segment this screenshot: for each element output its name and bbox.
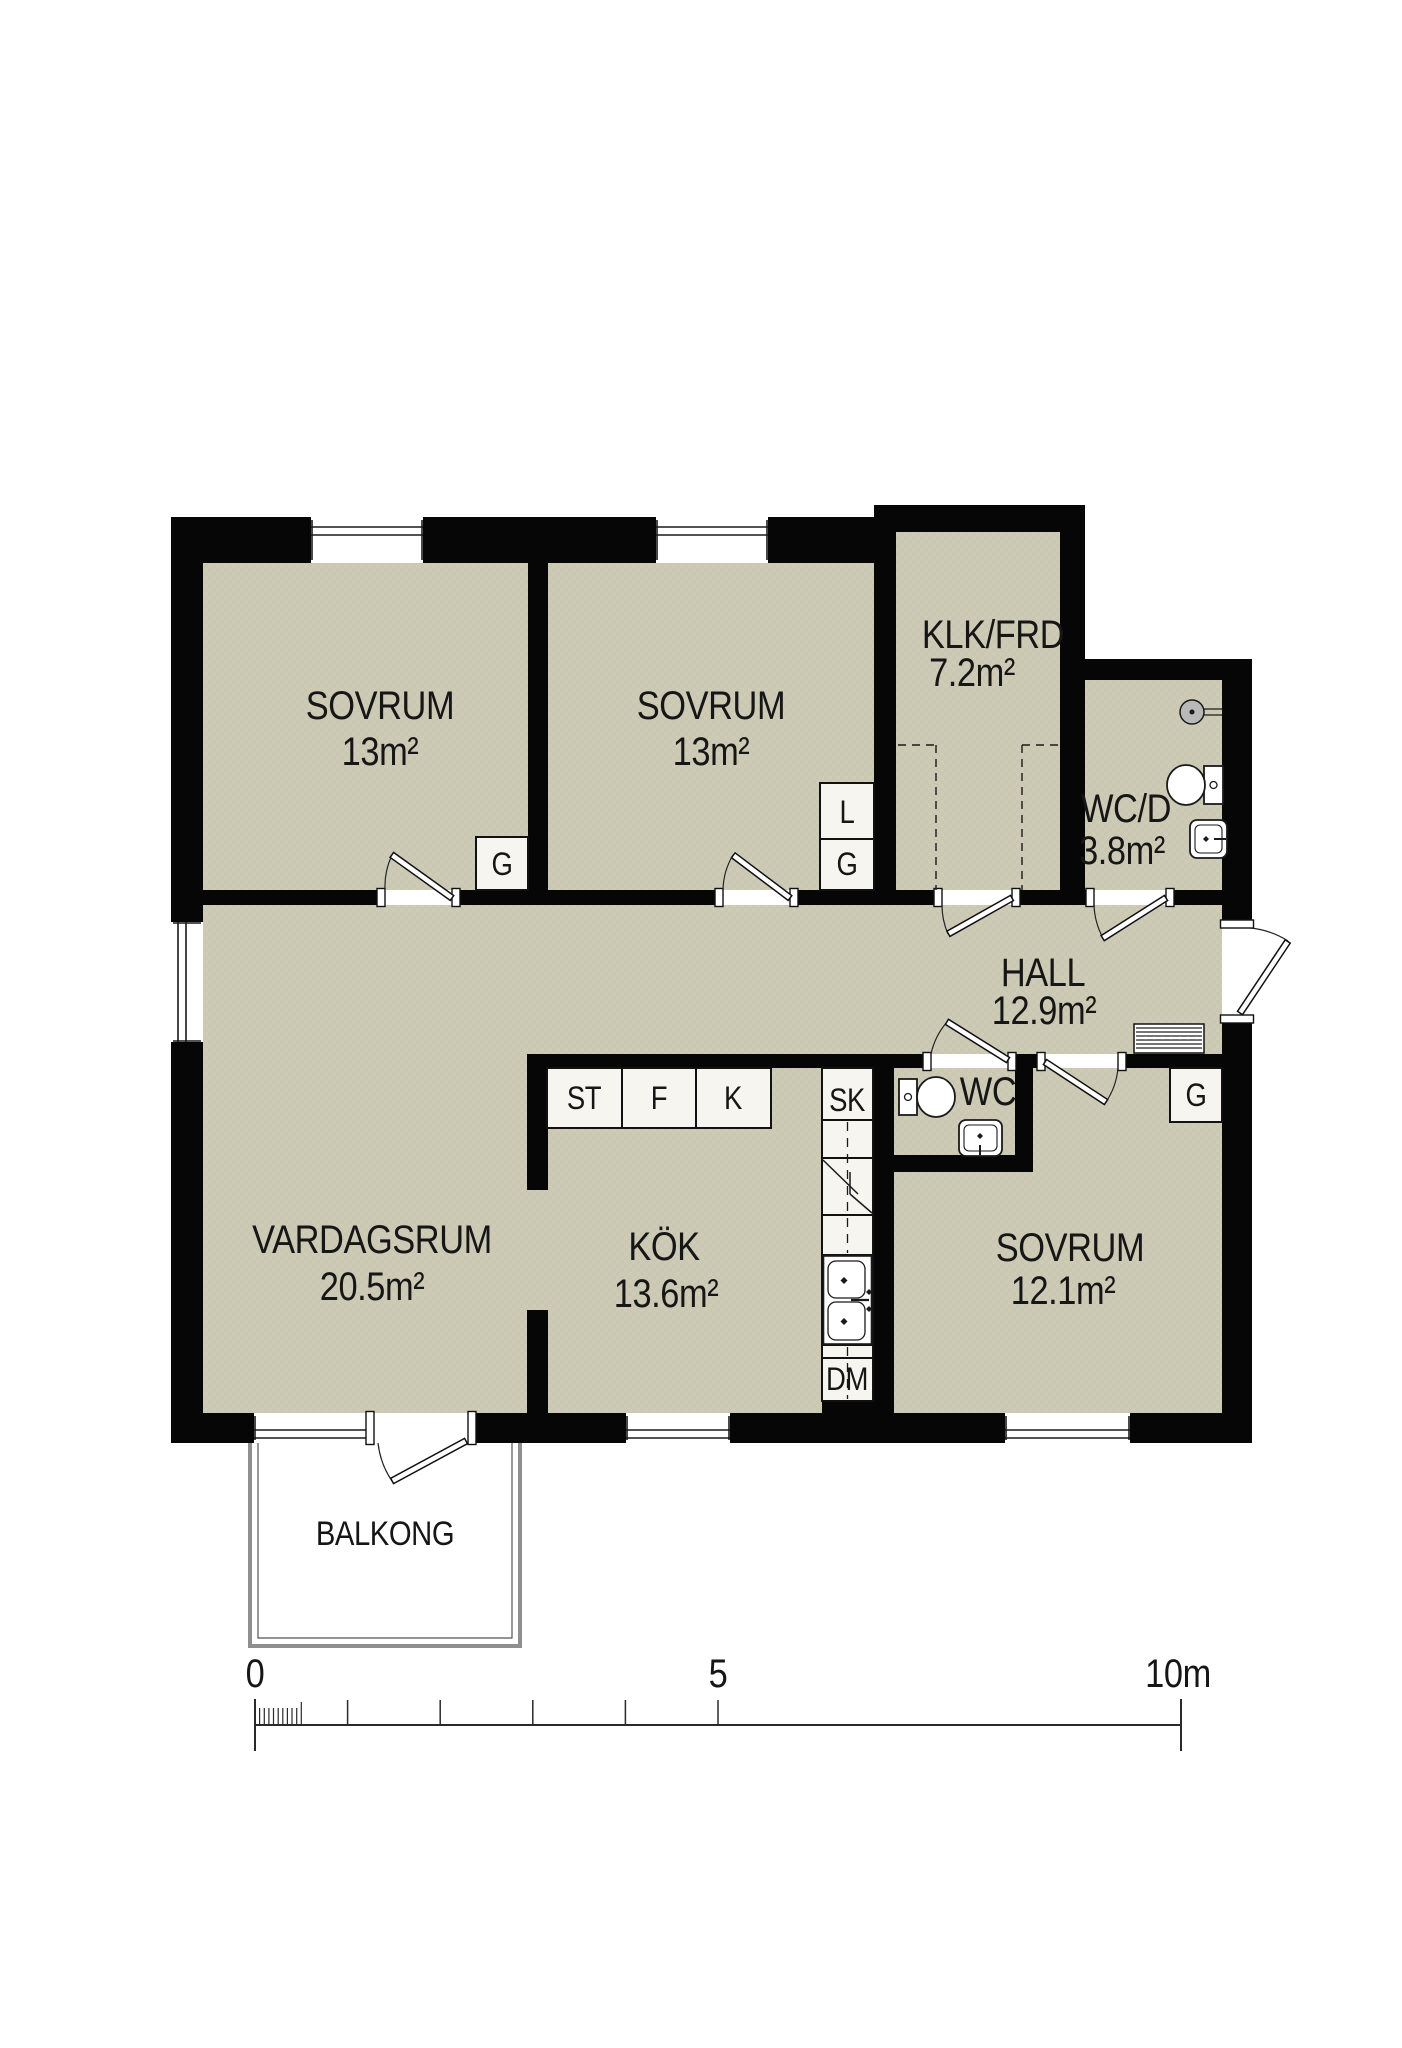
wall-livingroom-kitchen-upper: [527, 1068, 548, 1190]
room-label-sovrum3: SOVRUM: [996, 1228, 1144, 1268]
room-label-wc: WC: [960, 1072, 1016, 1112]
door-leaf: [391, 1438, 468, 1483]
sink-icon: [959, 1120, 1002, 1156]
sink-icon: [1190, 820, 1227, 858]
kitchen-sink-icon: [824, 1256, 873, 1344]
opening-balcony-door: [374, 1413, 468, 1443]
wall-kitchen-strip-cap: [822, 1401, 873, 1413]
window-livingroom-left: [171, 922, 203, 1042]
wall-exterior-right: [1222, 659, 1252, 1443]
room-label-sovrum2: SOVRUM: [637, 686, 785, 726]
room-area-vardagsrum: 20.5m²: [320, 1267, 424, 1307]
room-area-wcd: 3.8m²: [1079, 831, 1165, 871]
scale-label-0: 0: [246, 1654, 265, 1694]
scale-label-5: 5: [709, 1654, 728, 1694]
window-sovrum3: [1005, 1413, 1130, 1443]
wall-wc-bottom: [894, 1155, 1033, 1172]
door-balcony: [378, 1438, 467, 1483]
floor-plan-drawing: [0, 0, 1402, 2048]
outside-notch: [1085, 470, 1265, 659]
room-label-wcd: WC/D: [1081, 789, 1171, 829]
window-sovrum2: [656, 517, 768, 563]
wall-sovrum1-sovrum2-divider: [528, 563, 548, 905]
window-livingroom-bottom: [254, 1413, 374, 1443]
window-sovrum1: [311, 517, 423, 563]
room-area-hall: 12.9m²: [992, 991, 1096, 1031]
scale-bar: [255, 1699, 1181, 1751]
floor-klk-extension: [896, 532, 1060, 563]
cabinet-label-g-sovrum2: G: [837, 848, 858, 880]
room-area-sovrum1: 13m²: [342, 732, 419, 772]
wall-klk-top: [874, 505, 1085, 532]
cabinet-label-g-sovrum1: G: [492, 848, 513, 880]
floor-plan-page: SOVRUM 13m² SOVRUM 13m² KLK/FRD 7.2m² WC…: [0, 0, 1402, 2048]
scale-bar-fine-ticks: [260, 1702, 302, 1725]
appliance-label-st: ST: [567, 1082, 601, 1114]
scale-label-10m: 10m: [1145, 1654, 1211, 1694]
appliance-label-k: K: [724, 1082, 742, 1114]
room-label-kok: KÖK: [628, 1227, 699, 1267]
toilet-icon: [1167, 765, 1223, 805]
toilet-icon: [899, 1077, 955, 1117]
room-area-kok: 13.6m²: [614, 1274, 718, 1314]
room-label-sovrum1: SOVRUM: [306, 686, 454, 726]
room-area-sovrum2: 13m²: [673, 732, 750, 772]
room-label-hall: HALL: [1001, 953, 1085, 993]
wall-livingroom-kitchen-lower: [527, 1310, 548, 1443]
room-area-sovrum3: 12.1m²: [1011, 1271, 1115, 1311]
appliance-label-dm: DM: [826, 1363, 868, 1395]
wall-hall-bedrooms: [203, 890, 1222, 905]
wall-sovrum2-klk-divider: [874, 505, 896, 905]
room-label-klk-frd: KLK/FRD: [922, 615, 1064, 655]
room-area-klk-frd: 7.2m²: [929, 653, 1015, 693]
wall-exterior-top: [171, 517, 896, 563]
cabinet-label-g-sovrum3: G: [1186, 1079, 1207, 1111]
room-label-vardagsrum: VARDAGSRUM: [252, 1220, 492, 1260]
wall-kitchen-sovrum3-divider: [873, 1068, 894, 1413]
entrance-mat-icon: [1134, 1024, 1204, 1053]
window-kitchen: [626, 1413, 730, 1443]
cabinet-label-sk: SK: [829, 1084, 865, 1116]
room-label-balkong: BALKONG: [316, 1517, 454, 1551]
cabinet-label-l-sovrum2: L: [840, 796, 855, 828]
scale-bar-meter-ticks: [348, 1700, 718, 1725]
appliance-label-f: F: [651, 1082, 667, 1114]
